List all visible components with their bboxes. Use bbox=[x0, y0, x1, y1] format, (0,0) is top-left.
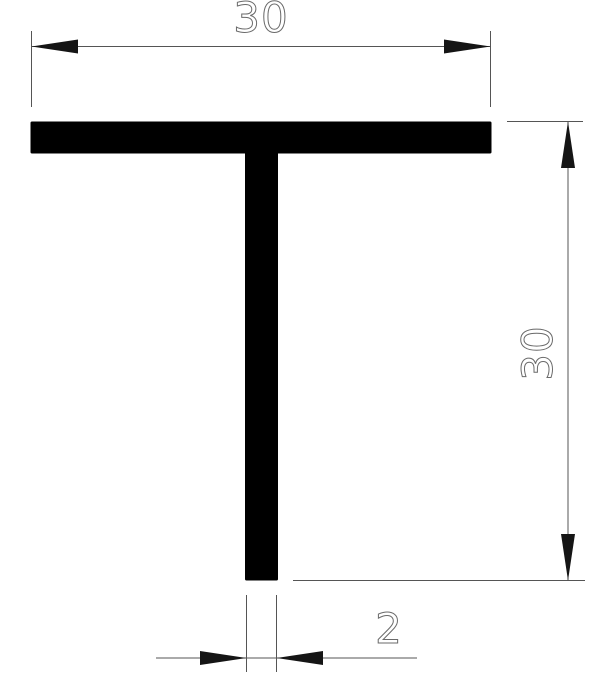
arrow-inward-left-icon bbox=[277, 651, 324, 665]
t-profile-section bbox=[32, 123, 490, 579]
dimension-web-thickness: 2 bbox=[156, 595, 417, 672]
dimension-flange-width: 30 bbox=[32, 0, 491, 107]
technical-drawing: 30 30 2 bbox=[0, 0, 600, 690]
dimension-label-flange-width: 30 bbox=[233, 0, 288, 42]
arrow-right-icon bbox=[444, 40, 491, 54]
dimension-label-overall-height: 30 bbox=[513, 325, 562, 380]
arrow-up-icon bbox=[561, 122, 575, 169]
arrow-left-icon bbox=[32, 40, 79, 54]
arrow-down-icon bbox=[561, 534, 575, 581]
arrow-inward-right-icon bbox=[200, 651, 247, 665]
dimension-overall-height: 30 bbox=[293, 122, 585, 581]
dimension-label-web-thickness: 2 bbox=[375, 604, 403, 653]
drawing-canvas: 30 30 2 bbox=[0, 0, 600, 690]
